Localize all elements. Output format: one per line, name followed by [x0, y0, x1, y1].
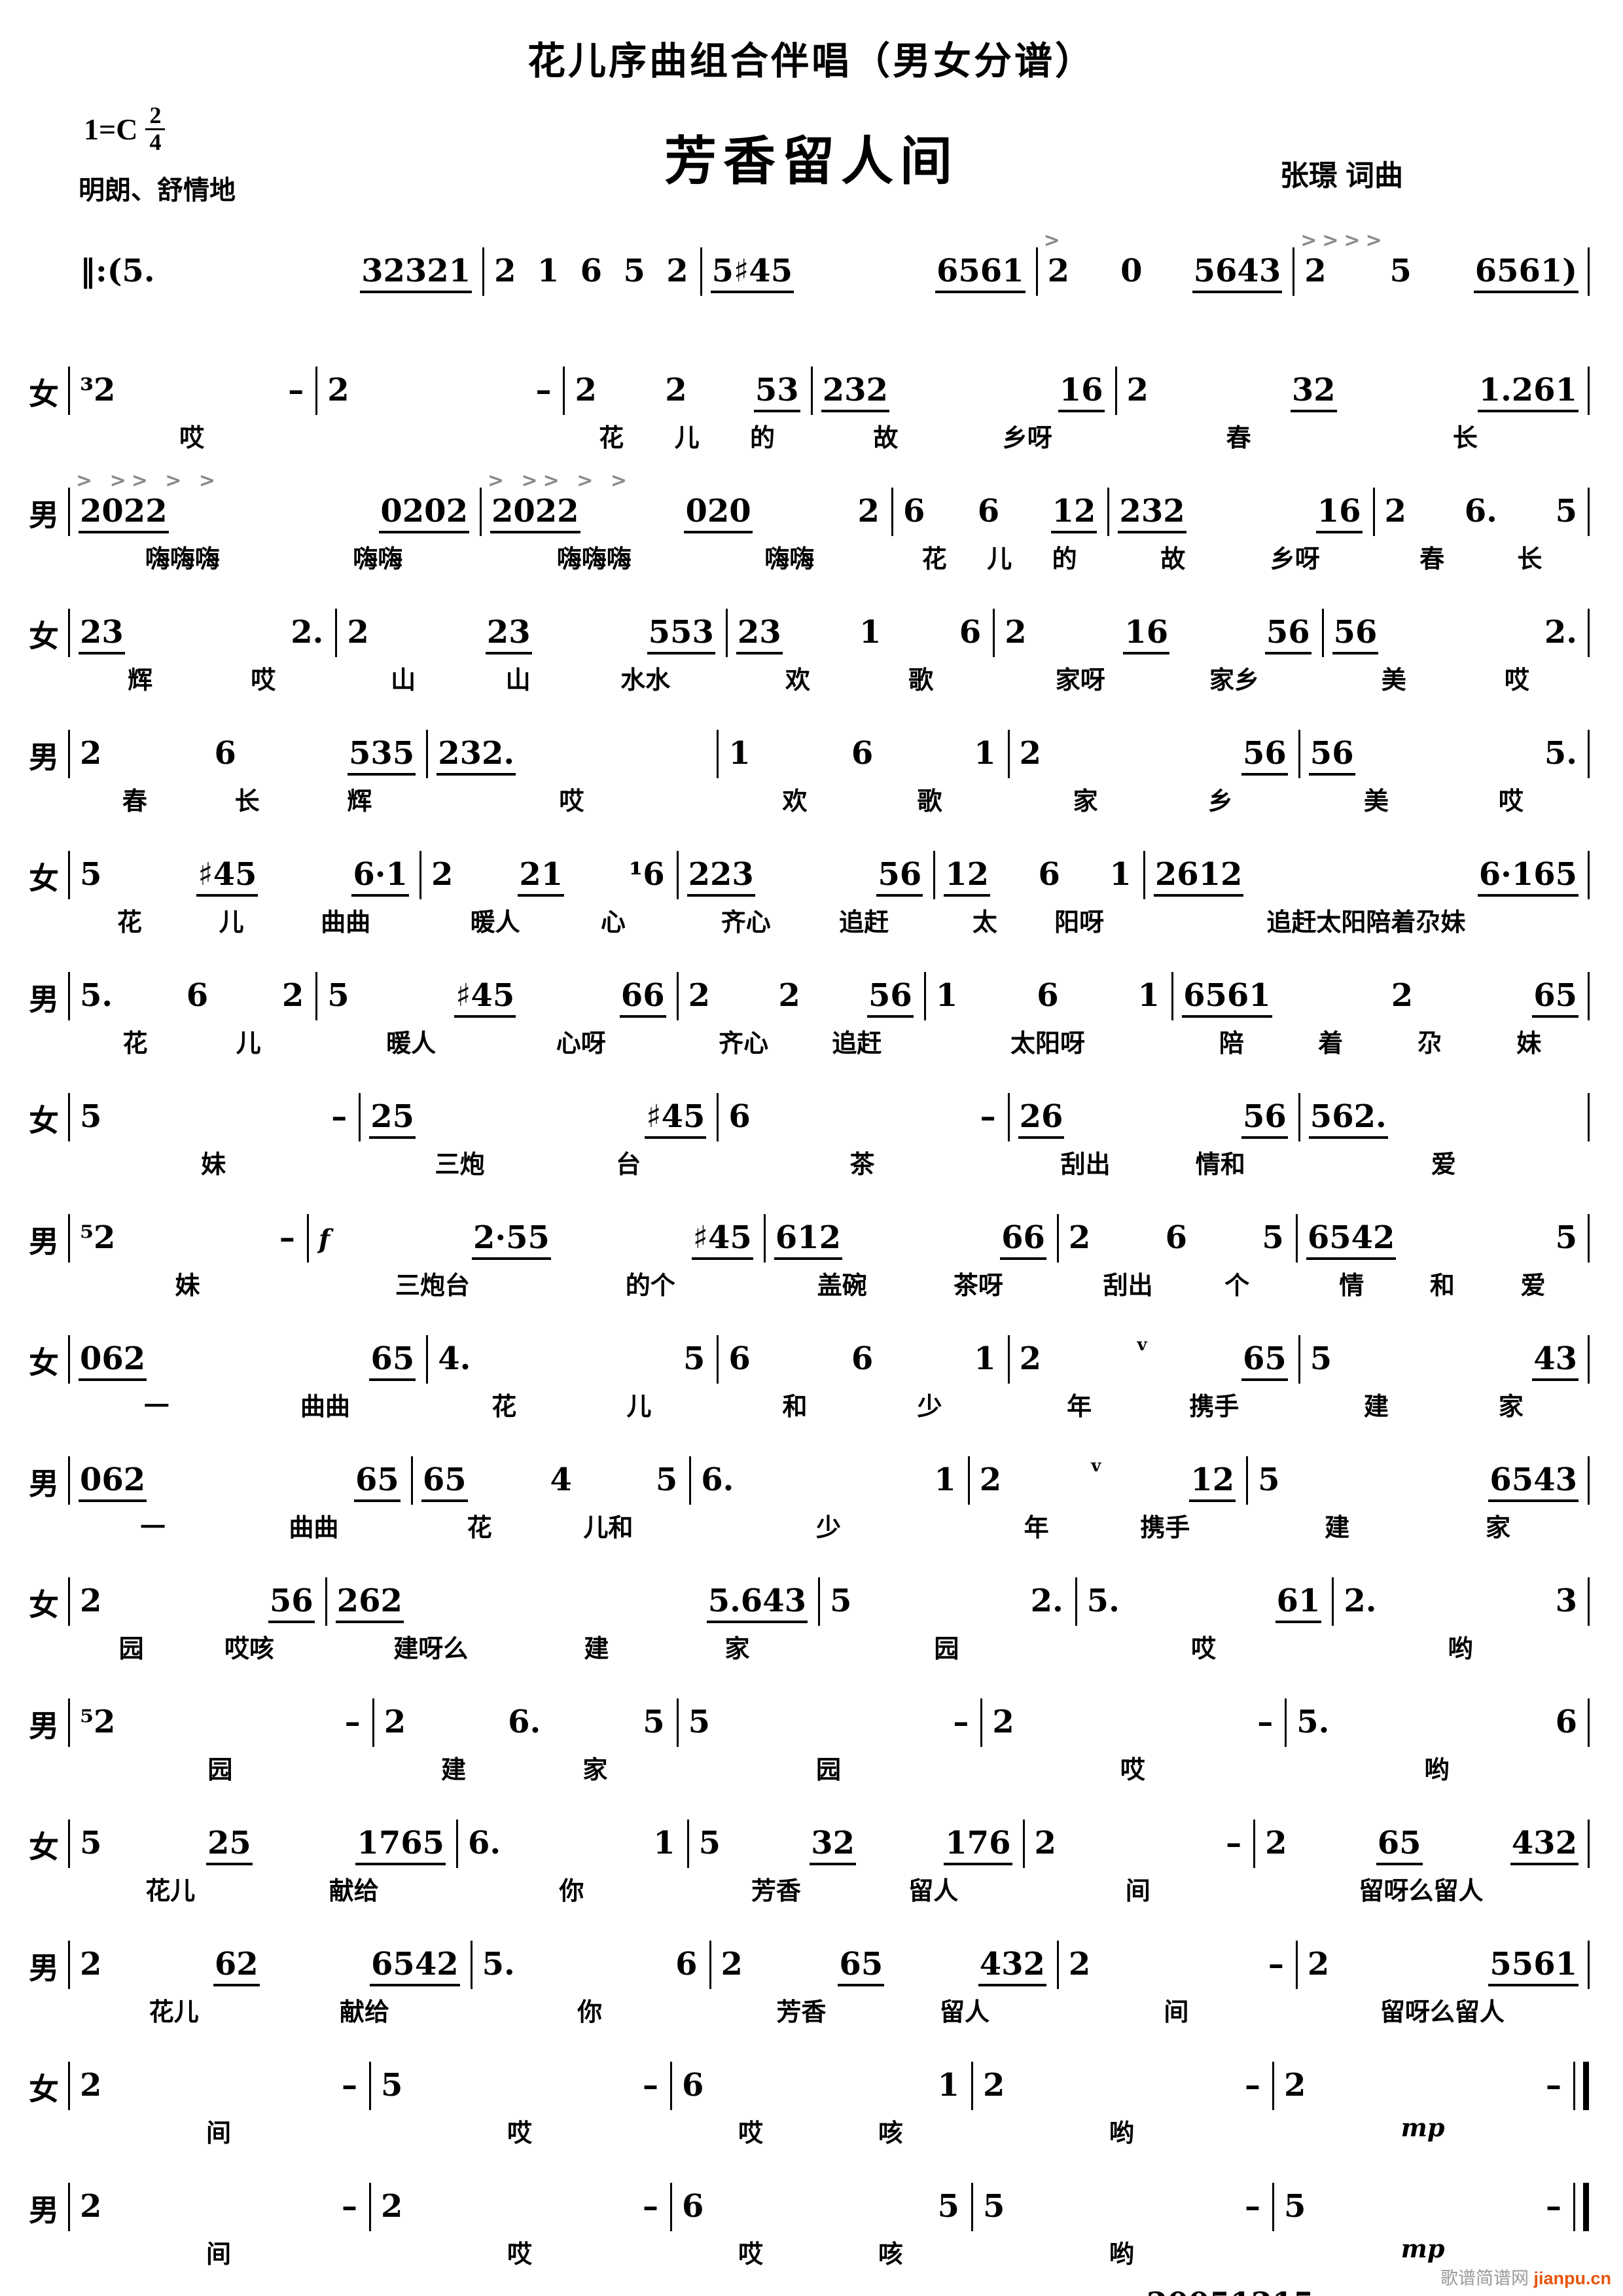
lyric-syllable: 咳	[878, 2234, 903, 2270]
lyric-syllable: 一	[140, 1507, 165, 1543]
lyric-syllable: 家	[1073, 781, 1098, 817]
lyric-syllable: 间	[1164, 1992, 1188, 2028]
lyric-syllable: 哎	[507, 2234, 532, 2270]
note-group: 5.	[1295, 1704, 1330, 1740]
note-group: 5	[641, 1704, 666, 1740]
lyrics: 家乡	[1018, 781, 1288, 817]
note-group: 232	[821, 372, 889, 412]
measure: 661和少	[717, 1317, 1007, 1422]
notes: 2.3	[1342, 1583, 1578, 1624]
lyric-syllable: 心呀	[556, 1023, 606, 1059]
watermark-domain: jianpu.cn	[1533, 2269, 1611, 2288]
measure: 25♯45三炮台	[359, 1075, 717, 1180]
measure: 543建家	[1298, 1317, 1589, 1422]
note-group: 3	[1554, 1583, 1578, 1619]
note-group: 0202	[379, 493, 469, 533]
score-line: 女 5♯456·1花儿曲曲221¹6暖人心22356齐心追赶1261太阳呀261…	[29, 833, 1589, 938]
note-group: 6.	[700, 1462, 735, 1498]
note-group: –	[287, 372, 305, 408]
note-group: 0	[1119, 253, 1143, 289]
watermark: 歌谱简谱网 jianpu.cn	[1440, 2264, 1611, 2289]
measure: 52.园	[818, 1559, 1075, 1664]
note-group: 062	[79, 1340, 147, 1381]
note-group: 1	[1108, 856, 1132, 893]
notes: ⁵2–	[79, 1704, 362, 1746]
notes: 6561265	[1182, 977, 1578, 1019]
note-group: 6	[674, 1946, 698, 1982]
lyrics: 春长	[1383, 539, 1578, 575]
voice-label: 男	[29, 1196, 68, 1301]
score-line: 男 > >> > >20220202嗨嗨嗨嗨嗨> >> > >20220202嗨…	[29, 469, 1589, 575]
notes: 256561)	[1303, 253, 1578, 295]
score-line: 男 2626542花儿献给5.6你265432芳香留人2–间25561留呀么留人	[29, 1922, 1589, 2028]
measure: 2–哟	[971, 2043, 1272, 2149]
measure: 06265一曲曲	[68, 1438, 411, 1543]
note-group: 5	[829, 1583, 853, 1619]
lyric-syllable: 阳呀	[1054, 902, 1104, 938]
measure: 2v65年携手	[1008, 1317, 1298, 1422]
measure: 5♯4566暖人心呀	[315, 954, 676, 1059]
notes: 223553	[346, 614, 715, 656]
lyrics: 花儿	[437, 1386, 706, 1422]
notes: 2–	[79, 2188, 359, 2230]
measure: >205643	[1036, 229, 1293, 332]
measure: 5251765花儿献给	[68, 1801, 456, 1907]
lyric-syllable: 儿	[987, 539, 1012, 575]
note-group: 5.	[1086, 1583, 1121, 1619]
notes: 5–	[1283, 2188, 1563, 2230]
note-group: 5	[1283, 2188, 1307, 2225]
measures: 06265一曲曲4.5花儿661和少2v65年携手543建家	[68, 1317, 1589, 1422]
note-group: 21	[518, 856, 564, 897]
measure: 06265一曲曲	[68, 1317, 426, 1422]
note-group: 232.	[437, 735, 516, 776]
lyrics: 刮出个	[1067, 1265, 1285, 1301]
lyrics: 建家	[1257, 1507, 1578, 1543]
measure: 5–哟	[971, 2164, 1272, 2270]
lyric-syllable: 春	[122, 781, 147, 817]
lyric-syllable: 长	[235, 781, 260, 817]
tempo-marking: 明朗、舒情地	[79, 169, 236, 207]
lyric-syllable: 少	[816, 1507, 841, 1543]
measure: 5.61哎	[1075, 1559, 1332, 1664]
voice-label: 女	[29, 348, 68, 454]
lyrics: 园	[829, 1628, 1065, 1664]
lyric-syllable: 山	[506, 660, 531, 696]
voice-label: 男	[29, 1680, 68, 1785]
voice-label: 男	[29, 469, 68, 575]
lyrics: 美哎	[1309, 781, 1578, 817]
note-group: 562.	[1309, 1098, 1388, 1139]
measure: 2–哎	[369, 2164, 670, 2270]
measure: 6561265陪着尕妹	[1171, 954, 1589, 1059]
score-line: 女 5–妹25♯45三炮台6–茶2656刮出情和562.爱	[29, 1075, 1589, 1180]
note-group: 25	[369, 1098, 416, 1139]
notes: 221¹6	[430, 856, 666, 898]
measure: 256家乡	[1008, 711, 1298, 817]
lyric-syllable: 家	[724, 1628, 749, 1664]
note-group: 6	[213, 735, 238, 772]
measure: > >> > >20220202嗨嗨嗨嗨嗨	[480, 469, 891, 575]
note-group: –	[1256, 1704, 1274, 1740]
note-group: –	[952, 1704, 970, 1740]
lyric-syllable: 哎	[179, 418, 204, 454]
lyric-syllable: 欢	[782, 781, 807, 817]
measure: 223553山山水水	[335, 590, 726, 696]
note-group: 535	[348, 735, 416, 776]
note-group: 6	[681, 2067, 705, 2104]
note-group: –	[534, 372, 552, 408]
note-group: 6.	[507, 1704, 542, 1740]
measure: 2256齐心追赶	[677, 954, 924, 1059]
note-group: 5.	[481, 1946, 516, 1982]
lyrics: 园哎咳	[79, 1628, 315, 1664]
note-group: 432	[1510, 1825, 1578, 1865]
lyrics: 建家	[1309, 1386, 1578, 1422]
note-group: 5.	[1543, 735, 1578, 772]
lyrics: 你	[481, 1992, 699, 2028]
note-group: 020	[684, 493, 752, 533]
lyric-syllable: 年	[1067, 1386, 1092, 1422]
note-group: 2.	[1029, 1583, 1065, 1619]
note-group: 2.	[1342, 1583, 1378, 1619]
lyrics	[1046, 298, 1283, 332]
note-group: 65	[421, 1462, 468, 1502]
note-group: 5	[936, 2188, 961, 2225]
note-group: 1	[1137, 977, 1161, 1014]
note-group: 1	[933, 1462, 957, 1498]
accent-marks: >	[1044, 229, 1065, 252]
note-group: 5	[654, 1462, 679, 1498]
lyric-syllable: 爱	[1521, 1265, 1546, 1301]
notes: 532176	[698, 1825, 1012, 1867]
lyric-syllable: 歌	[918, 781, 942, 817]
lyric-syllable: 建	[441, 1749, 466, 1785]
note-group: 12	[944, 856, 990, 897]
note-group: 2	[664, 372, 688, 408]
measures: ⁵2–妹f2·55♯45三炮台的个61266盖碗茶呀265刮出个65425情和爱	[68, 1196, 1589, 1301]
lyrics: 花儿和	[421, 1507, 679, 1543]
note-group: 432	[978, 1946, 1046, 1986]
lyric-syllable: 情	[1339, 1265, 1364, 1301]
lyrics: 情和爱	[1306, 1265, 1578, 1301]
lyrics: 故乡呀	[821, 418, 1105, 454]
notes: 2–	[380, 2188, 660, 2230]
note-group: 5	[79, 1825, 103, 1861]
lyrics: 花儿曲曲	[79, 902, 409, 938]
measure: 23216故乡呀	[811, 348, 1115, 454]
lyrics: 陪着尕妹	[1182, 1023, 1578, 1059]
notes: 26.5	[1383, 493, 1578, 535]
note-group: v	[1135, 1335, 1148, 1355]
measure: 65哎咳	[670, 2164, 971, 2270]
note-group: 2	[982, 2067, 1006, 2104]
note-group: 2	[430, 856, 454, 893]
note-group: 1	[727, 735, 751, 772]
measure: 161太阳呀	[924, 954, 1171, 1059]
lyrics: mp	[1283, 2234, 1563, 2268]
note-group: 176	[944, 1825, 1012, 1865]
lyrics: 花儿献给	[79, 1992, 460, 2028]
lyric-syllable: 暖人	[386, 1023, 436, 1059]
note-group: 6561)	[1474, 253, 1578, 293]
measure: 562.美哎	[1322, 590, 1589, 696]
note-group: –	[344, 1704, 362, 1740]
notes: 5251765	[79, 1825, 446, 1867]
lyric-syllable: 妹	[201, 1144, 226, 1180]
measures: > >> > >20220202嗨嗨嗨嗨嗨> >> > >20220202嗨嗨嗨…	[68, 469, 1589, 575]
measure: 5.6哟	[1285, 1680, 1589, 1785]
lyric-syllable: 携手	[1140, 1507, 1190, 1543]
notes: 26126·165	[1154, 856, 1578, 898]
lyrics: 建呀么建家	[336, 1628, 808, 1664]
voice-label: 男	[29, 1922, 68, 2028]
voice-label: 女	[29, 1559, 68, 1664]
note-group: 65	[369, 1340, 416, 1381]
note-group: 56	[867, 977, 914, 1018]
lyric-syllable: 追赶太阳陪着尕妹	[1266, 902, 1465, 938]
lyric-syllable: 家乡	[1209, 660, 1259, 696]
measure: 5–mp	[1272, 2164, 1573, 2270]
note-group: –	[340, 2188, 359, 2225]
notes: 4.5	[437, 1340, 706, 1382]
note-group: 4.	[437, 1340, 472, 1377]
lyrics: 芳香留人	[698, 1871, 1012, 1907]
measure: 2–间	[1023, 1801, 1254, 1907]
lyrics: 家呀家乡	[1003, 660, 1311, 696]
measure: 6612花儿的	[891, 469, 1107, 575]
note-group: 56	[876, 856, 923, 897]
voice-label	[29, 229, 68, 332]
lyric-syllable: 花儿	[145, 1871, 195, 1907]
lyric-syllable: 太	[972, 902, 997, 938]
lyric-syllable: mp	[1401, 2113, 1445, 2147]
note-group: 2	[326, 372, 350, 408]
notes: 5♯456·1	[79, 856, 409, 898]
note-group: 6	[850, 735, 874, 772]
lyrics: 三炮台的个	[317, 1265, 753, 1301]
lyric-syllable: 春	[1226, 418, 1251, 454]
notes: 23216	[1118, 493, 1362, 535]
note-group: 2	[1003, 614, 1027, 651]
notes: 562.	[1332, 614, 1578, 656]
note-group: 6	[958, 614, 982, 651]
lyrics: 一曲曲	[79, 1507, 401, 1543]
note-group: 2.	[289, 614, 325, 651]
note-group: 6	[1035, 977, 1060, 1014]
measure: 161欢歌	[717, 711, 1007, 817]
lyrics: 建家	[383, 1749, 666, 1785]
lyric-syllable: 园	[816, 1749, 841, 1785]
measure: 6.1少	[689, 1438, 967, 1543]
lyrics: 花儿献给	[79, 1871, 446, 1907]
note-group: 5♯45	[711, 253, 794, 293]
note-group: 23	[736, 614, 783, 655]
lyrics: 春长辉	[79, 781, 416, 817]
lyrics: 芳香留人	[720, 1992, 1046, 2028]
note-group: 16	[1316, 493, 1363, 533]
lyric-syllable: 和	[782, 1386, 807, 1422]
lyric-syllable: 嗨嗨	[353, 539, 402, 575]
note-group: 6	[1164, 1219, 1188, 1256]
notes: f2·55♯45	[317, 1219, 753, 1261]
notes: 65425	[1306, 1219, 1578, 1261]
note-group: –	[979, 1098, 997, 1135]
series-title: 花儿序曲组合伴唱（男女分谱）	[0, 30, 1623, 85]
lyric-syllable: 儿	[236, 1023, 261, 1059]
notes: ⁵2–	[79, 1219, 296, 1261]
lyric-syllable: 歌	[908, 660, 933, 696]
lyrics: 茶	[727, 1144, 997, 1180]
notes: 61266	[774, 1219, 1046, 1261]
note-group: –	[340, 2067, 359, 2104]
note-group: 32321	[360, 253, 472, 293]
note-group: 5.643	[707, 1583, 808, 1623]
measure: ⁵2–园	[68, 1680, 372, 1785]
measure: f2·55♯45三炮台的个	[307, 1196, 764, 1301]
notes: 2–	[1283, 2067, 1563, 2109]
note-group: ⁵2	[79, 1704, 116, 1740]
lyrics: 暖人心	[430, 902, 666, 938]
score-lines: ‖:(5.32321216525♯456561>205643>>>>256561…	[0, 226, 1623, 2270]
measures: 256园哎咳2625.643建呀么建家52.园5.61哎2.3哟	[68, 1559, 1589, 1664]
lyrics: 花儿的	[902, 539, 1097, 575]
note-group: 65	[838, 1946, 884, 1986]
note-group: 2	[857, 493, 881, 529]
lyrics: 年携手	[978, 1507, 1236, 1543]
notes: 265432	[1264, 1825, 1578, 1867]
note-group: 56	[268, 1583, 315, 1623]
note-group: 2	[1018, 1340, 1043, 1377]
measure: ³2–哎	[68, 348, 315, 454]
lyrics: 哎咳	[681, 2113, 961, 2149]
lyrics: 欢歌	[736, 660, 982, 696]
measure: 5–哎	[369, 2043, 670, 2149]
lyric-syllable: 哎	[1191, 1628, 1216, 1664]
lyric-syllable: 年	[1024, 1507, 1049, 1543]
note-group: 6	[1554, 1704, 1578, 1740]
lyric-syllable: 哎咳	[224, 1628, 274, 1664]
measures: ‖:(5.32321216525♯456561>205643>>>>256561…	[68, 229, 1589, 332]
note-group: 26	[1018, 1098, 1065, 1139]
lyric-syllable: 你	[559, 1871, 584, 1907]
note-group: 6	[727, 1340, 751, 1377]
lyric-syllable: 留人	[908, 1871, 958, 1907]
score-line: 男 5.62花儿5♯4566暖人心呀2256齐心追赶161太阳呀6561265陪…	[29, 954, 1589, 1059]
measure: 2321.261春长	[1115, 348, 1589, 454]
notes: 61	[681, 2067, 961, 2109]
lyric-syllable: 携手	[1189, 1386, 1239, 1422]
lyric-syllable: 齐心	[721, 902, 771, 938]
lyric-syllable: 尕	[1418, 1023, 1442, 1059]
lyrics: 间	[79, 2234, 359, 2270]
note-group: 5	[698, 1825, 722, 1861]
voice-label: 女	[29, 1801, 68, 1907]
note-group: 6	[185, 977, 209, 1014]
note-group: 5643	[1192, 253, 1283, 293]
note-group: 2	[79, 735, 103, 772]
note-group: –	[1544, 2067, 1563, 2104]
note-group: 56	[1241, 735, 1288, 776]
measure: ⁵2–妹	[68, 1196, 307, 1301]
note-group: –	[1243, 2188, 1262, 2225]
notes: 06265	[79, 1340, 416, 1382]
lyrics: 哎	[1086, 1628, 1322, 1664]
notes: 5–	[380, 2067, 660, 2109]
note-group: 5	[79, 856, 103, 893]
notes: 1261	[944, 856, 1133, 898]
date-stamp: 20051215	[0, 2286, 1623, 2296]
lyric-syllable: 长	[1453, 418, 1478, 454]
measure: 2–间	[1057, 1922, 1296, 2028]
measure: 26126·165追赶太阳陪着尕妹	[1143, 833, 1589, 938]
note-group: 4	[549, 1462, 573, 1498]
measure: 5♯456·1花儿曲曲	[68, 833, 419, 938]
lyrics: 哎	[380, 2234, 660, 2270]
lyric-syllable: 追赶	[839, 902, 889, 938]
lyrics	[1303, 298, 1578, 332]
lyric-syllable: 儿	[675, 418, 700, 454]
note-group: 1	[935, 977, 959, 1014]
note-group: 53	[754, 372, 800, 412]
note-group: 65	[1532, 977, 1578, 1018]
note-group: 2	[573, 372, 597, 408]
lyric-syllable: mp	[1401, 2234, 1445, 2268]
lyric-syllable: 着	[1318, 1023, 1343, 1059]
notes: 06265	[79, 1462, 401, 1503]
note-group: 2	[687, 977, 711, 1014]
notes: 265	[1067, 1219, 1285, 1261]
measure: 5.6你	[471, 1922, 709, 2028]
lyrics: 欢歌	[727, 781, 997, 817]
lyric-syllable: 哟	[1109, 2234, 1134, 2270]
note-group: 66	[1000, 1219, 1046, 1260]
note-group: 6542	[1306, 1219, 1397, 1260]
lyric-syllable: 间	[206, 2234, 231, 2270]
note-group: 5	[682, 1340, 706, 1377]
lyric-syllable: 三炮	[435, 1144, 484, 1180]
lyric-syllable: 曲曲	[300, 1386, 350, 1422]
score-line: 男 06265一曲曲6545花儿和6.1少2v12年携手56543建家	[29, 1438, 1589, 1543]
lyric-syllable: 花儿	[149, 1992, 199, 2028]
lyric-syllable: 暖人	[471, 902, 520, 938]
lyrics: 花儿	[79, 1023, 305, 1059]
notes: 5.6	[1295, 1704, 1578, 1746]
notes: 23216	[821, 372, 1105, 414]
lyric-syllable: 嗨嗨嗨	[145, 539, 220, 575]
note-group: 6	[681, 2188, 705, 2225]
voice-label: 女	[29, 833, 68, 938]
notes: 25561	[1306, 1946, 1578, 1988]
lyric-syllable: 献给	[329, 1871, 379, 1907]
lyric-syllable: 留人	[940, 1992, 990, 2028]
notes: 65	[681, 2188, 961, 2230]
measure: 5–妹	[68, 1075, 359, 1180]
lyrics: 和少	[727, 1386, 997, 1422]
lyric-syllable: 太阳呀	[1010, 1023, 1085, 1059]
note-group: 2	[1283, 2067, 1307, 2104]
note-group: 56	[1332, 614, 1379, 655]
lyric-syllable: 哎	[559, 781, 584, 817]
lyrics: 哎	[79, 418, 305, 454]
measure: 565.美哎	[1298, 711, 1589, 817]
note-group: 2	[1033, 1825, 1058, 1861]
note-group: 56	[1309, 735, 1355, 776]
lyrics	[711, 298, 1026, 332]
note-group: 1	[858, 614, 882, 651]
note-group: 6542	[370, 1946, 460, 1986]
notes: 256	[79, 1583, 315, 1624]
